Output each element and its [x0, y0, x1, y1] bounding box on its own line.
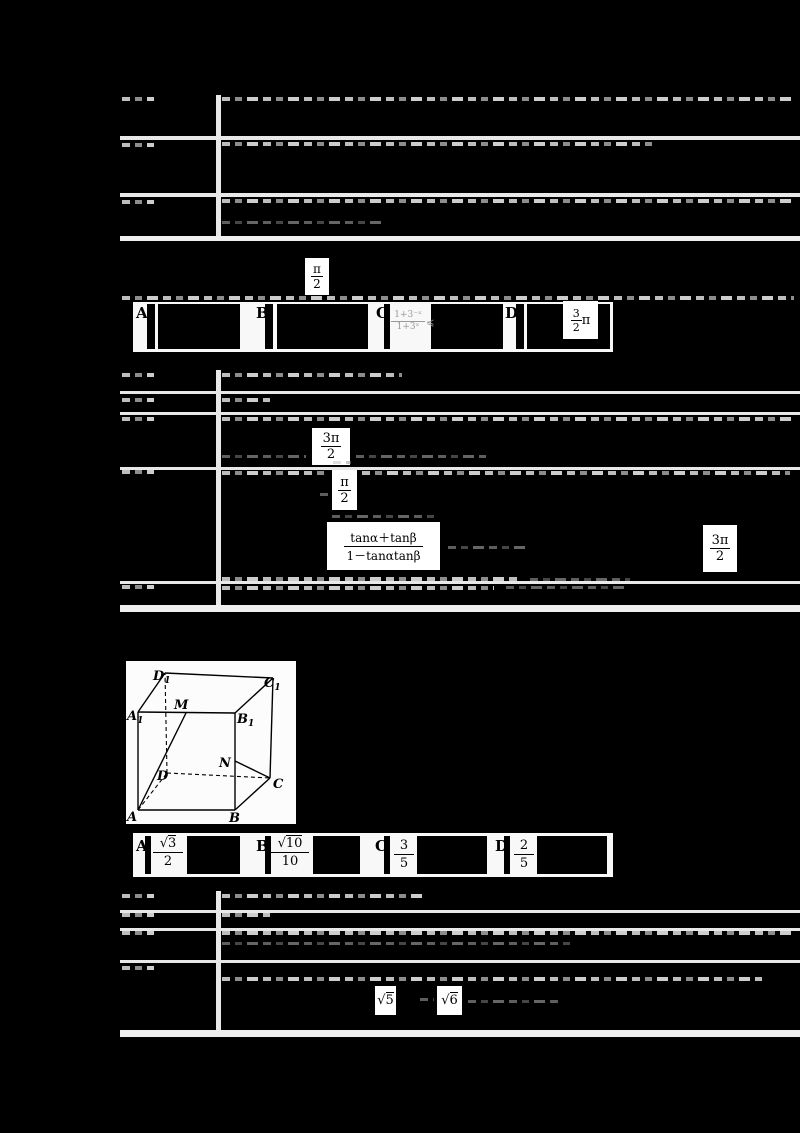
option-a-separator	[147, 304, 155, 349]
option-d-separator	[516, 304, 524, 349]
option-a-separator	[145, 836, 151, 874]
ghost-text-line	[222, 398, 270, 402]
ghost-text-line	[122, 417, 154, 421]
option-d-separator	[504, 836, 510, 874]
table1-row-gap	[120, 193, 800, 197]
ghost-text-line	[222, 894, 422, 898]
ghost-text-line	[122, 913, 154, 917]
option-b-separator	[265, 304, 273, 349]
option-d-formula-inverted	[537, 836, 607, 874]
ghost-text-line	[362, 471, 790, 475]
formula-pi-over-2: π2	[332, 470, 357, 510]
ghost-text-line	[222, 199, 794, 203]
table2-column-separator	[216, 370, 221, 605]
ghost-text-line	[122, 373, 154, 377]
pi-symbol: π	[582, 313, 591, 328]
table3-text-solution: 解：设正方体的棱长为2，取AB的中点E，连接CE、NE，则EN＝，CN＝，在△E…	[222, 964, 796, 1028]
formula-pi-over-2: π2	[305, 258, 329, 295]
question3-text: 3．如图，在正方体ABCD－A1B1C1D1中，M、N分别是棱A1B1、B1B的…	[122, 616, 796, 656]
option-a-formula-inverted	[187, 836, 240, 874]
vertex-label-D: D	[156, 769, 169, 784]
ghost-text-line	[122, 470, 154, 474]
cube-figure: D1 C1 A1 B1 M N D C A B	[126, 661, 296, 824]
table1-text-analysis: 根据函数的奇偶性和单调性，逐一判断各个选项中的函数是否满足条件，从而得出结论．	[222, 96, 796, 134]
ghost-text-line	[222, 221, 382, 224]
table1-text-comment: 本题主要考查函数的奇偶性和单调性的判断，属于基础题．	[222, 198, 796, 234]
ghost-text-line	[356, 455, 486, 458]
table2-text-category: 计算题．	[222, 397, 796, 411]
ghost-text-line	[122, 200, 154, 204]
option-c-ghost-relation: ≼	[426, 318, 434, 329]
ghost-text-line	[122, 143, 154, 147]
ghost-text-line	[122, 931, 154, 935]
option-c-separator	[384, 304, 390, 349]
table2-row-gap	[120, 412, 800, 415]
ghost-text-line	[222, 586, 494, 590]
document-page: 分析 根据函数的奇偶性和单调性，逐一判断各个选项中的函数是否满足条件，从而得出结…	[0, 0, 800, 1133]
table3-bottom-border	[120, 1030, 800, 1037]
ghost-text-line	[222, 142, 652, 146]
table1-row-gap	[120, 136, 800, 140]
option-b-formula-inverted	[277, 304, 368, 349]
vertex-label-C: C	[273, 777, 284, 792]
ghost-text-line	[333, 461, 351, 464]
option-c-formula-inverted	[417, 836, 487, 874]
ghost-text-line	[468, 1000, 558, 1003]
option-b-formula-inverted	[313, 836, 360, 874]
ghost-text-line	[222, 417, 794, 421]
option-c-formula-inverted	[431, 304, 503, 349]
table2-bottom-border	[120, 605, 800, 612]
option-d-formula-2-over-5: 2 5	[514, 837, 534, 872]
ghost-text-line	[320, 493, 332, 496]
ghost-text-line	[122, 966, 154, 970]
ghost-text-line	[222, 913, 270, 917]
ghost-text-line	[222, 931, 794, 935]
ghost-text-line	[506, 586, 624, 589]
ghost-text-line	[222, 97, 794, 101]
ghost-text-line	[222, 577, 522, 581]
table3-row-gap	[120, 960, 800, 963]
table1-bottom-border	[120, 236, 800, 241]
table1-text-solution: 解：由函数的图象与性质可知，该函数为偶函数，且在（0，＋∞）上单调递增，满足条件…	[222, 141, 796, 191]
ghost-text-line	[122, 398, 154, 402]
vertex-label-A: A	[126, 810, 137, 824]
formula-sqrt6: √6	[437, 986, 462, 1015]
table2-row-gap	[120, 581, 800, 584]
formula-3pi-over-2: 3π2	[312, 428, 350, 465]
option-c-ghost-formula: 1+3⁻ˣ 1+3ˣ	[391, 310, 425, 333]
option-c-separator	[384, 836, 390, 874]
ghost-text-line	[530, 578, 630, 581]
option-a-label: A	[136, 305, 148, 321]
ghost-text-line	[122, 97, 154, 101]
ghost-text-line	[222, 977, 762, 981]
formula-3pi-over-2: 3π2	[703, 525, 737, 572]
ghost-text-line	[222, 471, 326, 475]
ghost-text-line	[448, 546, 526, 549]
ghost-text-line	[222, 455, 306, 458]
option-b-formula-sqrt10-over-10: √10 10	[271, 835, 309, 870]
option-c-formula-3-over-5: 3 5	[394, 837, 414, 872]
option-a-formula-inverted	[158, 304, 240, 349]
table2-row-gap	[120, 391, 800, 394]
formula-sqrt5: √5	[375, 986, 396, 1015]
table3-text-category: 计算题．	[222, 912, 796, 927]
formula-tangent-addition: tanα＋tanβ1－tanαtanβ	[327, 522, 440, 570]
table1-column-separator	[216, 95, 221, 236]
ghost-text-line	[222, 373, 402, 377]
point-label-N: N	[218, 756, 232, 771]
point-label-M: M	[173, 698, 189, 713]
ghost-text-line	[122, 296, 794, 300]
ghost-text-line	[332, 515, 438, 518]
option-a-formula-sqrt3-over-2: √3 2	[153, 835, 183, 870]
ghost-text-line	[420, 998, 434, 1001]
formula-three-halves-pi: 32 π	[563, 301, 598, 339]
vertex-label-B: B	[228, 811, 240, 824]
table2-row-gap	[120, 467, 800, 470]
table2-text-analysis: 由条件利用诱导公式可得所求式子即为 tan 的值，再利用两角和的正切公式求得结果…	[222, 416, 796, 464]
ghost-text-line	[222, 942, 572, 945]
ghost-text-line	[122, 894, 154, 898]
ghost-text-line	[122, 585, 154, 589]
